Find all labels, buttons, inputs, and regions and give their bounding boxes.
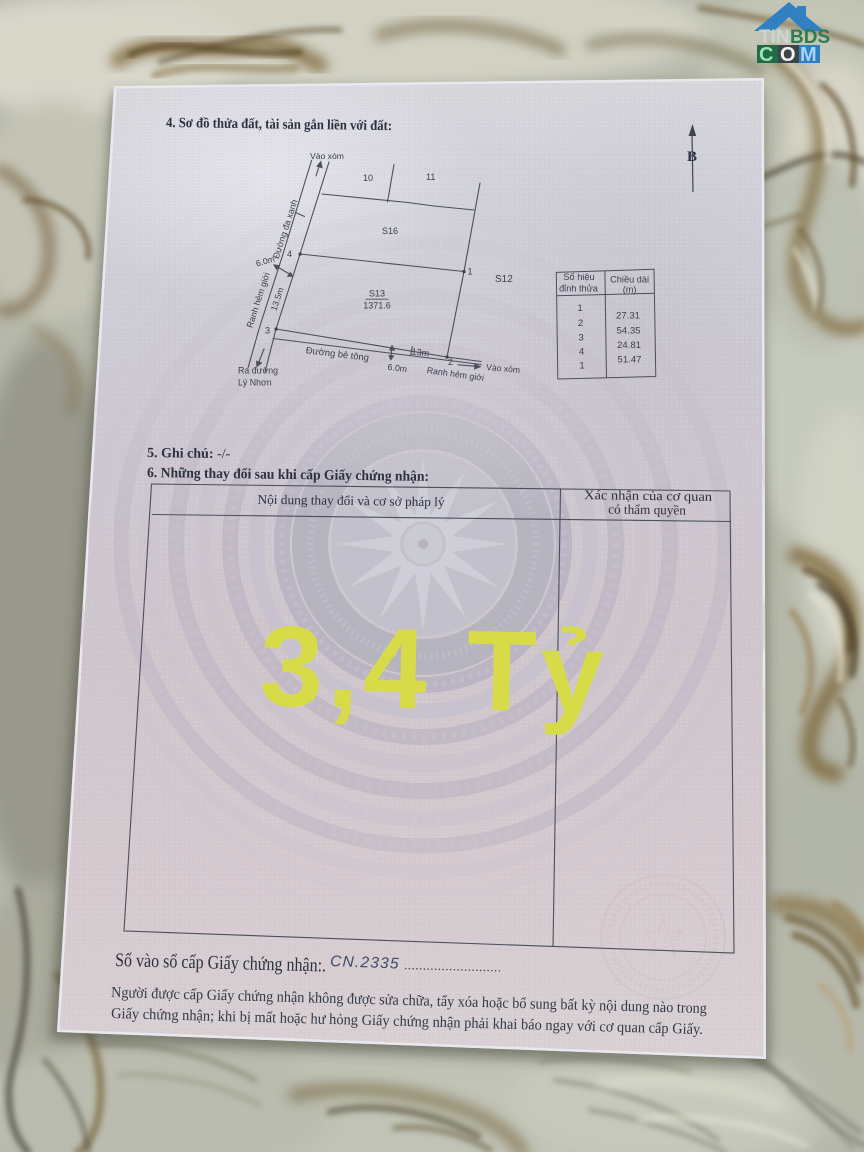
svg-text:O: O: [780, 44, 796, 66]
svg-text:M: M: [800, 44, 817, 66]
svg-text:C: C: [759, 44, 773, 66]
